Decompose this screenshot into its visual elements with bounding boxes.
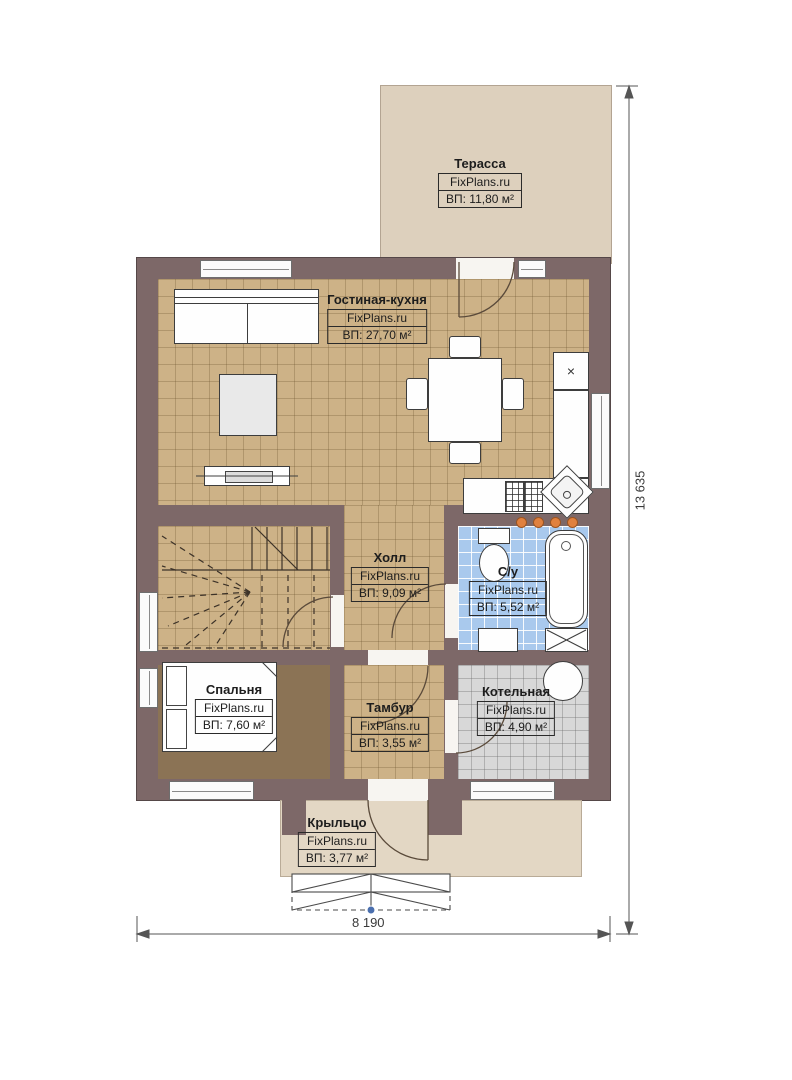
door-opening-entrance: [368, 779, 428, 801]
floor-plan: ×: [0, 0, 792, 1080]
area-text: ВП: 3,55 м²: [352, 735, 428, 751]
room-label-hall: Холл FixPlans.ru ВП: 9,09 м²: [351, 550, 429, 602]
window-boiler-bottom: [470, 781, 555, 800]
area-text: ВП: 11,80 м²: [439, 191, 521, 207]
room-name: Крыльцо: [298, 815, 376, 830]
toilet-tank: [478, 528, 510, 544]
door-opening-terrace: [456, 258, 514, 279]
label-box: FixPlans.ru ВП: 5,52 м²: [469, 581, 547, 616]
radiator-dot: [567, 517, 578, 528]
area-text: ВП: 7,60 м²: [196, 717, 272, 733]
kitchen-counter-right: [553, 390, 589, 478]
brand-text: FixPlans.ru: [439, 174, 521, 191]
brand-text: FixPlans.ru: [478, 702, 554, 719]
washing-machine: [545, 628, 588, 652]
window-terrace-side: [518, 260, 546, 278]
radiator-dot: [533, 517, 544, 528]
room-name: Спальня: [195, 682, 273, 697]
dining-chair-right: [502, 378, 524, 410]
bathtub: [545, 530, 588, 628]
wall-living-stairs: [158, 505, 344, 526]
window-kitchen-right: [591, 393, 610, 489]
brand-text: FixPlans.ru: [352, 718, 428, 735]
coffee-table: [219, 374, 277, 436]
room-name: Терасса: [438, 156, 522, 171]
dining-chair-left: [406, 378, 428, 410]
window-living-top: [200, 260, 292, 278]
label-box: FixPlans.ru ВП: 27,70 м²: [327, 309, 427, 344]
dining-table: [428, 358, 502, 442]
window-bedroom-left: [139, 668, 158, 708]
room-name: Котельная: [477, 684, 555, 699]
room-label-bedroom: Спальня FixPlans.ru ВП: 7,60 м²: [195, 682, 273, 734]
label-box: FixPlans.ru ВП: 4,90 м²: [477, 701, 555, 736]
refrigerator: ×: [553, 352, 589, 390]
porch-steps: [292, 874, 450, 914]
label-box: FixPlans.ru ВП: 3,77 м²: [298, 832, 376, 867]
door-opening-vestibule: [368, 650, 428, 665]
brand-text: FixPlans.ru: [352, 568, 428, 585]
brand-text: FixPlans.ru: [299, 833, 375, 850]
room-name: Тамбур: [351, 700, 429, 715]
floor-stairs: [158, 526, 330, 650]
room-label-living: Гостиная-кухня FixPlans.ru ВП: 27,70 м²: [327, 292, 427, 344]
bathroom-sink: [478, 628, 518, 652]
door-opening-boiler: [445, 700, 458, 753]
refrigerator-mark: ×: [567, 363, 575, 379]
brand-text: FixPlans.ru: [328, 310, 426, 327]
tv-stand: [204, 466, 290, 486]
stove-left: [505, 481, 524, 512]
radiator-dot: [516, 517, 527, 528]
wall-stairs-hall: [330, 526, 344, 779]
room-label-boiler: Котельная FixPlans.ru ВП: 4,90 м²: [477, 684, 555, 736]
sofa: [174, 289, 319, 344]
room-name: Холл: [351, 550, 429, 565]
door-opening-stairs: [331, 595, 344, 647]
radiator-dot: [550, 517, 561, 528]
room-name: С/у: [469, 564, 547, 579]
dining-chair-bottom: [449, 442, 481, 464]
dimension-height-label: 13 635: [633, 461, 648, 521]
label-box: FixPlans.ru ВП: 9,09 м²: [351, 567, 429, 602]
room-label-bathroom: С/у FixPlans.ru ВП: 5,52 м²: [469, 564, 547, 616]
area-text: ВП: 5,52 м²: [470, 599, 546, 615]
brand-text: FixPlans.ru: [470, 582, 546, 599]
room-name: Гостиная-кухня: [327, 292, 427, 307]
room-label-vestibule: Тамбур FixPlans.ru ВП: 3,55 м²: [351, 700, 429, 752]
door-opening-bathroom: [445, 584, 458, 638]
area-text: ВП: 3,77 м²: [299, 850, 375, 866]
room-label-porch: Крыльцо FixPlans.ru ВП: 3,77 м²: [298, 815, 376, 867]
area-text: ВП: 27,70 м²: [328, 327, 426, 343]
window-bedroom-bottom: [169, 781, 254, 800]
area-text: ВП: 4,90 м²: [478, 719, 554, 735]
room-label-terrace: Терасса FixPlans.ru ВП: 11,80 м²: [438, 156, 522, 208]
brand-text: FixPlans.ru: [196, 700, 272, 717]
dimension-width-label: 8 190: [352, 915, 385, 930]
dining-chair-top: [449, 336, 481, 358]
label-box: FixPlans.ru ВП: 3,55 м²: [351, 717, 429, 752]
label-box: FixPlans.ru ВП: 7,60 м²: [195, 699, 273, 734]
window-stairs-left: [139, 592, 158, 652]
area-text: ВП: 9,09 м²: [352, 585, 428, 601]
stove-right: [524, 481, 543, 512]
label-box: FixPlans.ru ВП: 11,80 м²: [438, 173, 522, 208]
porch-pilaster-right: [428, 800, 462, 835]
